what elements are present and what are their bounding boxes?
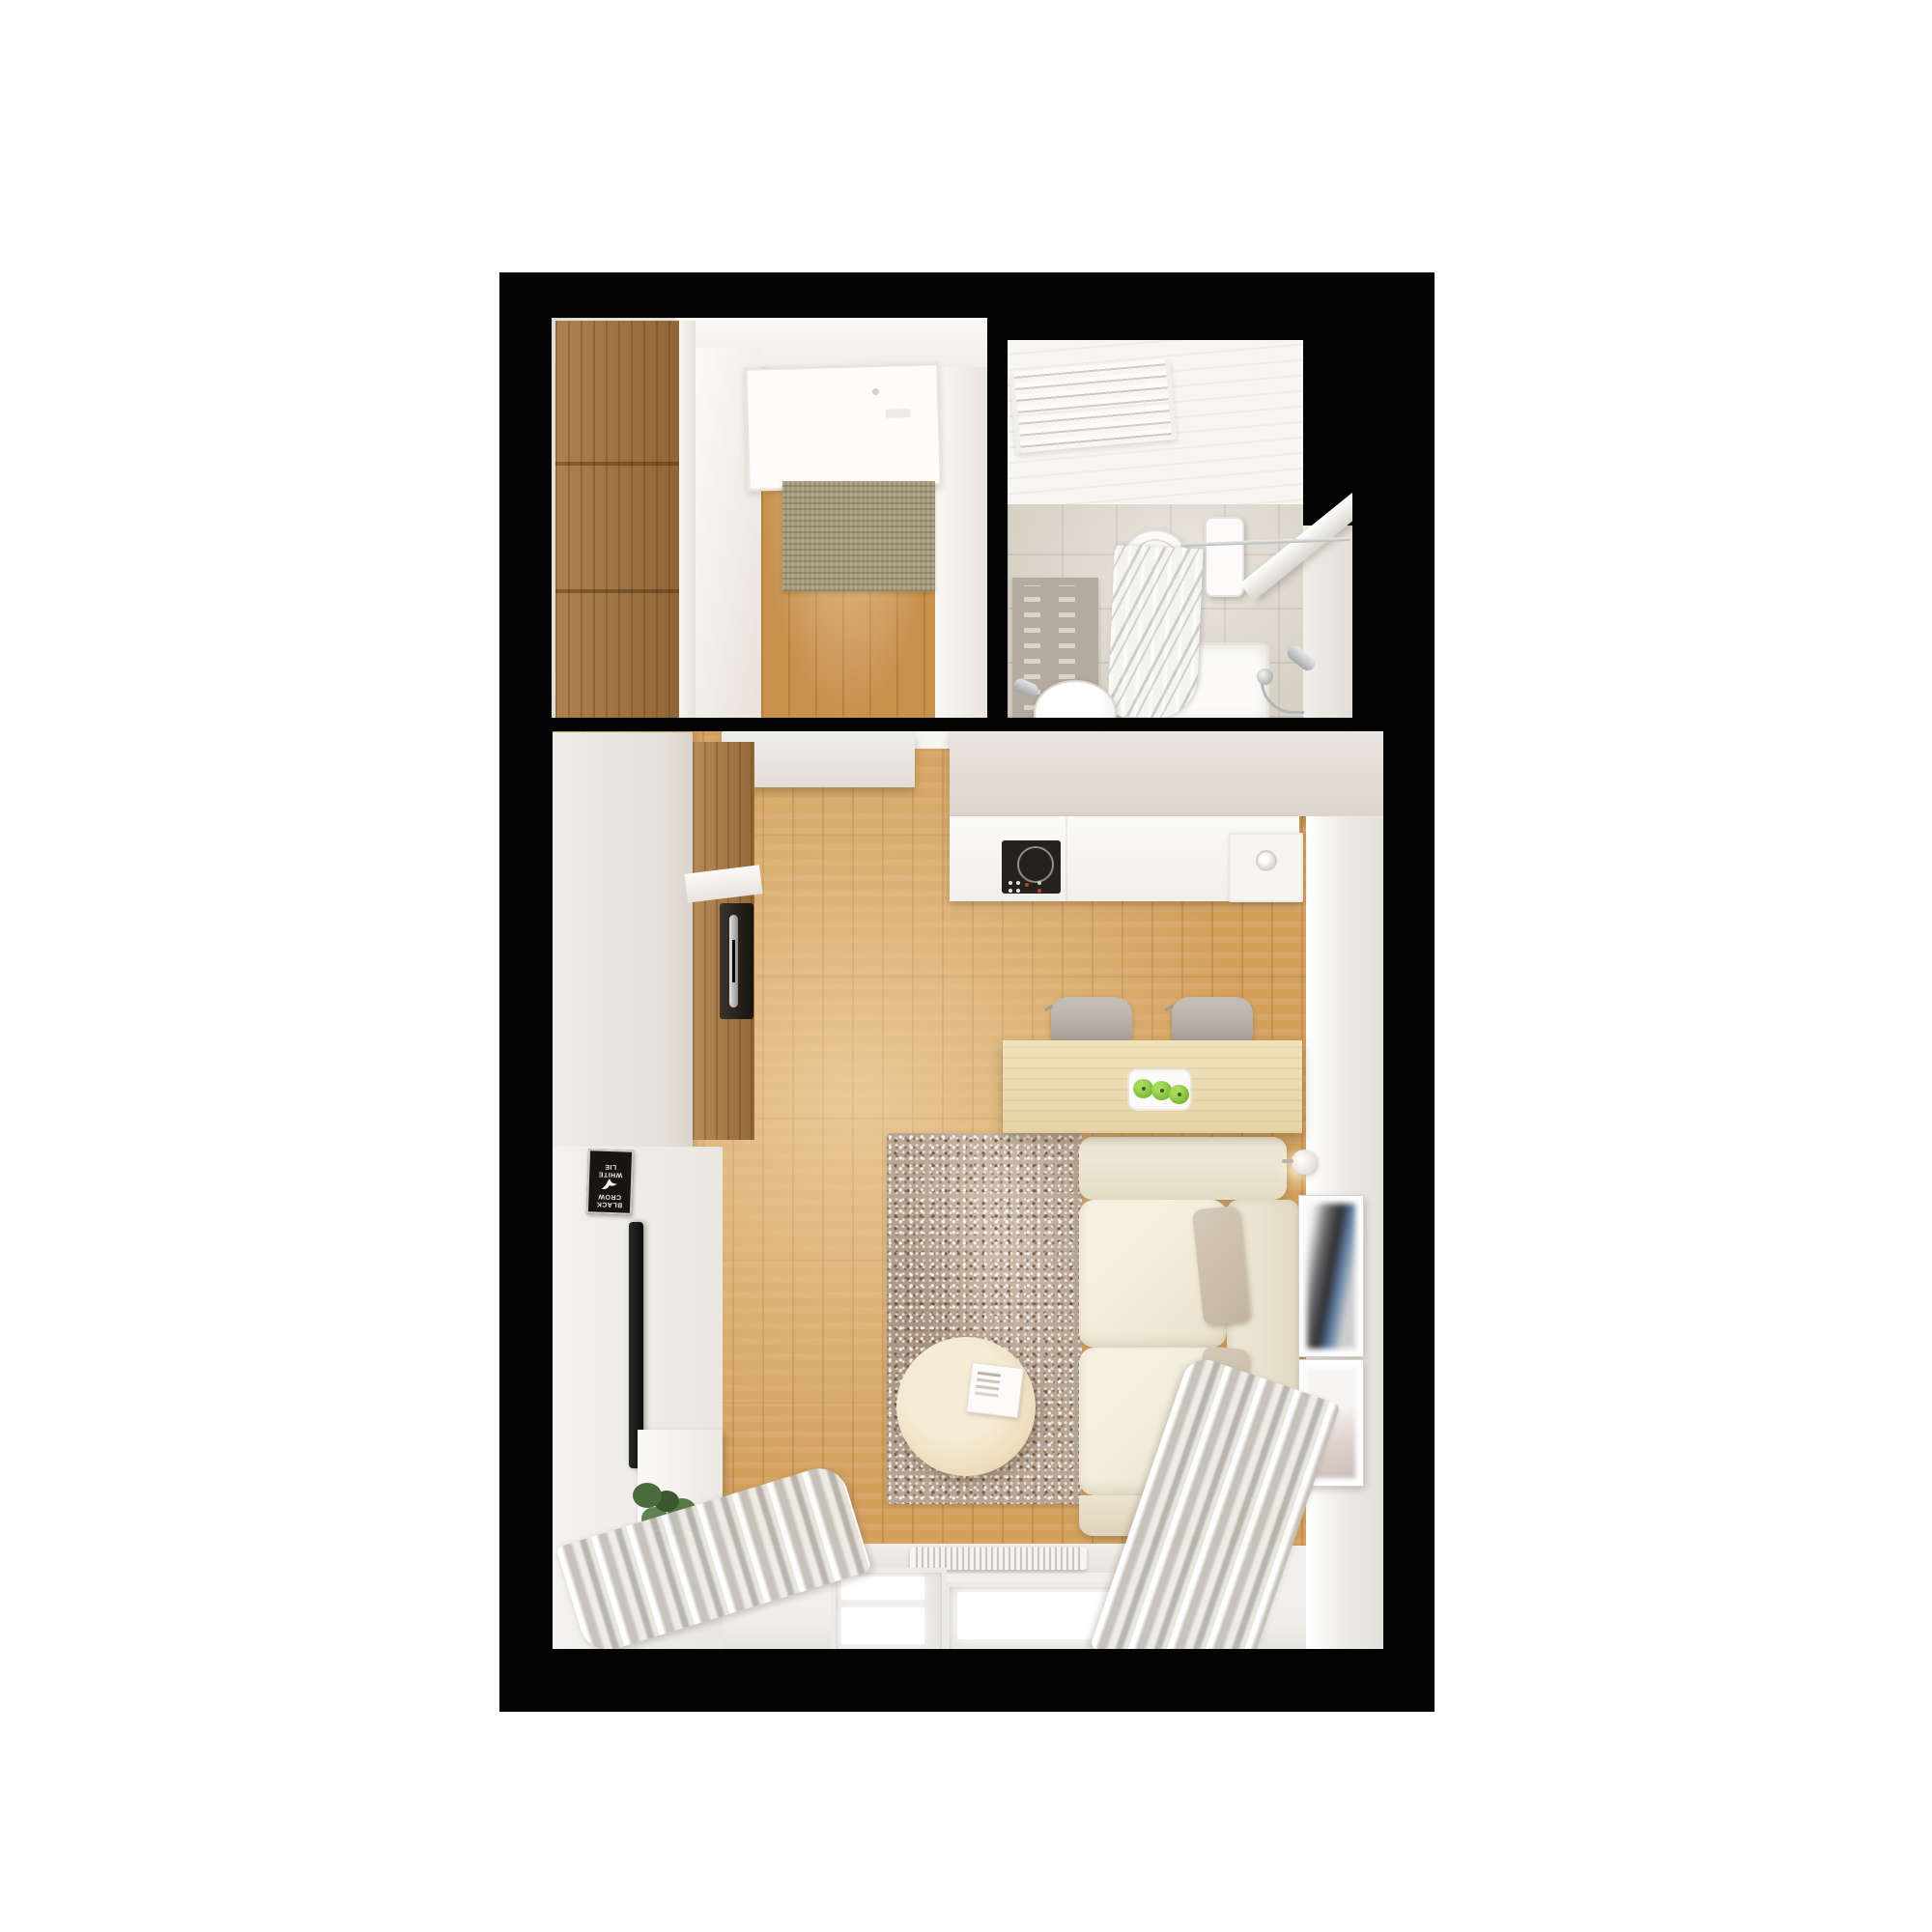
window-left	[831, 1568, 947, 1649]
entry-oak-wardrobe	[555, 321, 679, 718]
magazine	[966, 1362, 1024, 1418]
shower-valve	[1257, 668, 1273, 685]
white-wardrobe-column	[553, 732, 693, 1148]
room-entry-hall	[552, 318, 987, 718]
entry-right-wall	[935, 367, 987, 718]
dining-chair	[1172, 997, 1253, 1041]
entry-wardrobe-edge	[679, 321, 696, 718]
entry-door	[744, 362, 942, 492]
wall-art-frame	[1299, 1196, 1363, 1356]
toilet-tank	[1205, 517, 1244, 597]
sofa-backrest	[1079, 1137, 1287, 1200]
room-living-kitchen: BLACK CROW WHITE LIE	[553, 731, 1383, 1649]
radiator	[910, 1548, 1087, 1570]
bird-icon	[600, 1178, 619, 1192]
sink-drain	[1256, 850, 1277, 871]
induction-cooktop	[1002, 840, 1061, 894]
abstract-art	[1307, 1204, 1355, 1349]
poster-line: BLACK	[596, 1201, 622, 1208]
green-apple	[1169, 1085, 1189, 1104]
entry-doormat	[782, 481, 935, 591]
green-apple	[1133, 1079, 1153, 1098]
floor-plan-render: BLACK CROW WHITE LIE	[0, 0, 1932, 1932]
potted-plant	[633, 1483, 662, 1508]
poster-line: LIE	[605, 1163, 617, 1170]
shower-curtain	[1107, 545, 1204, 718]
door-peephole	[872, 388, 879, 395]
poster-artwork: BLACK CROW WHITE LIE	[590, 1152, 630, 1210]
kitchen-upper-cabinets	[950, 731, 1383, 816]
cooktop-controls	[1009, 881, 1012, 885]
burner-ring	[1017, 846, 1054, 883]
wall-poster: BLACK CROW WHITE LIE	[586, 1149, 634, 1215]
room-bathroom	[1008, 340, 1352, 718]
dining-chair	[1051, 997, 1132, 1041]
wall-sconce	[1292, 1150, 1317, 1175]
fruit-tray	[1127, 1068, 1192, 1111]
kitchen-sink	[1229, 833, 1303, 902]
poster-line: WHITE	[598, 1171, 622, 1179]
towel-radiator	[1009, 358, 1178, 453]
poster-line: CROW	[598, 1193, 621, 1201]
built-in-oven	[720, 903, 753, 1019]
